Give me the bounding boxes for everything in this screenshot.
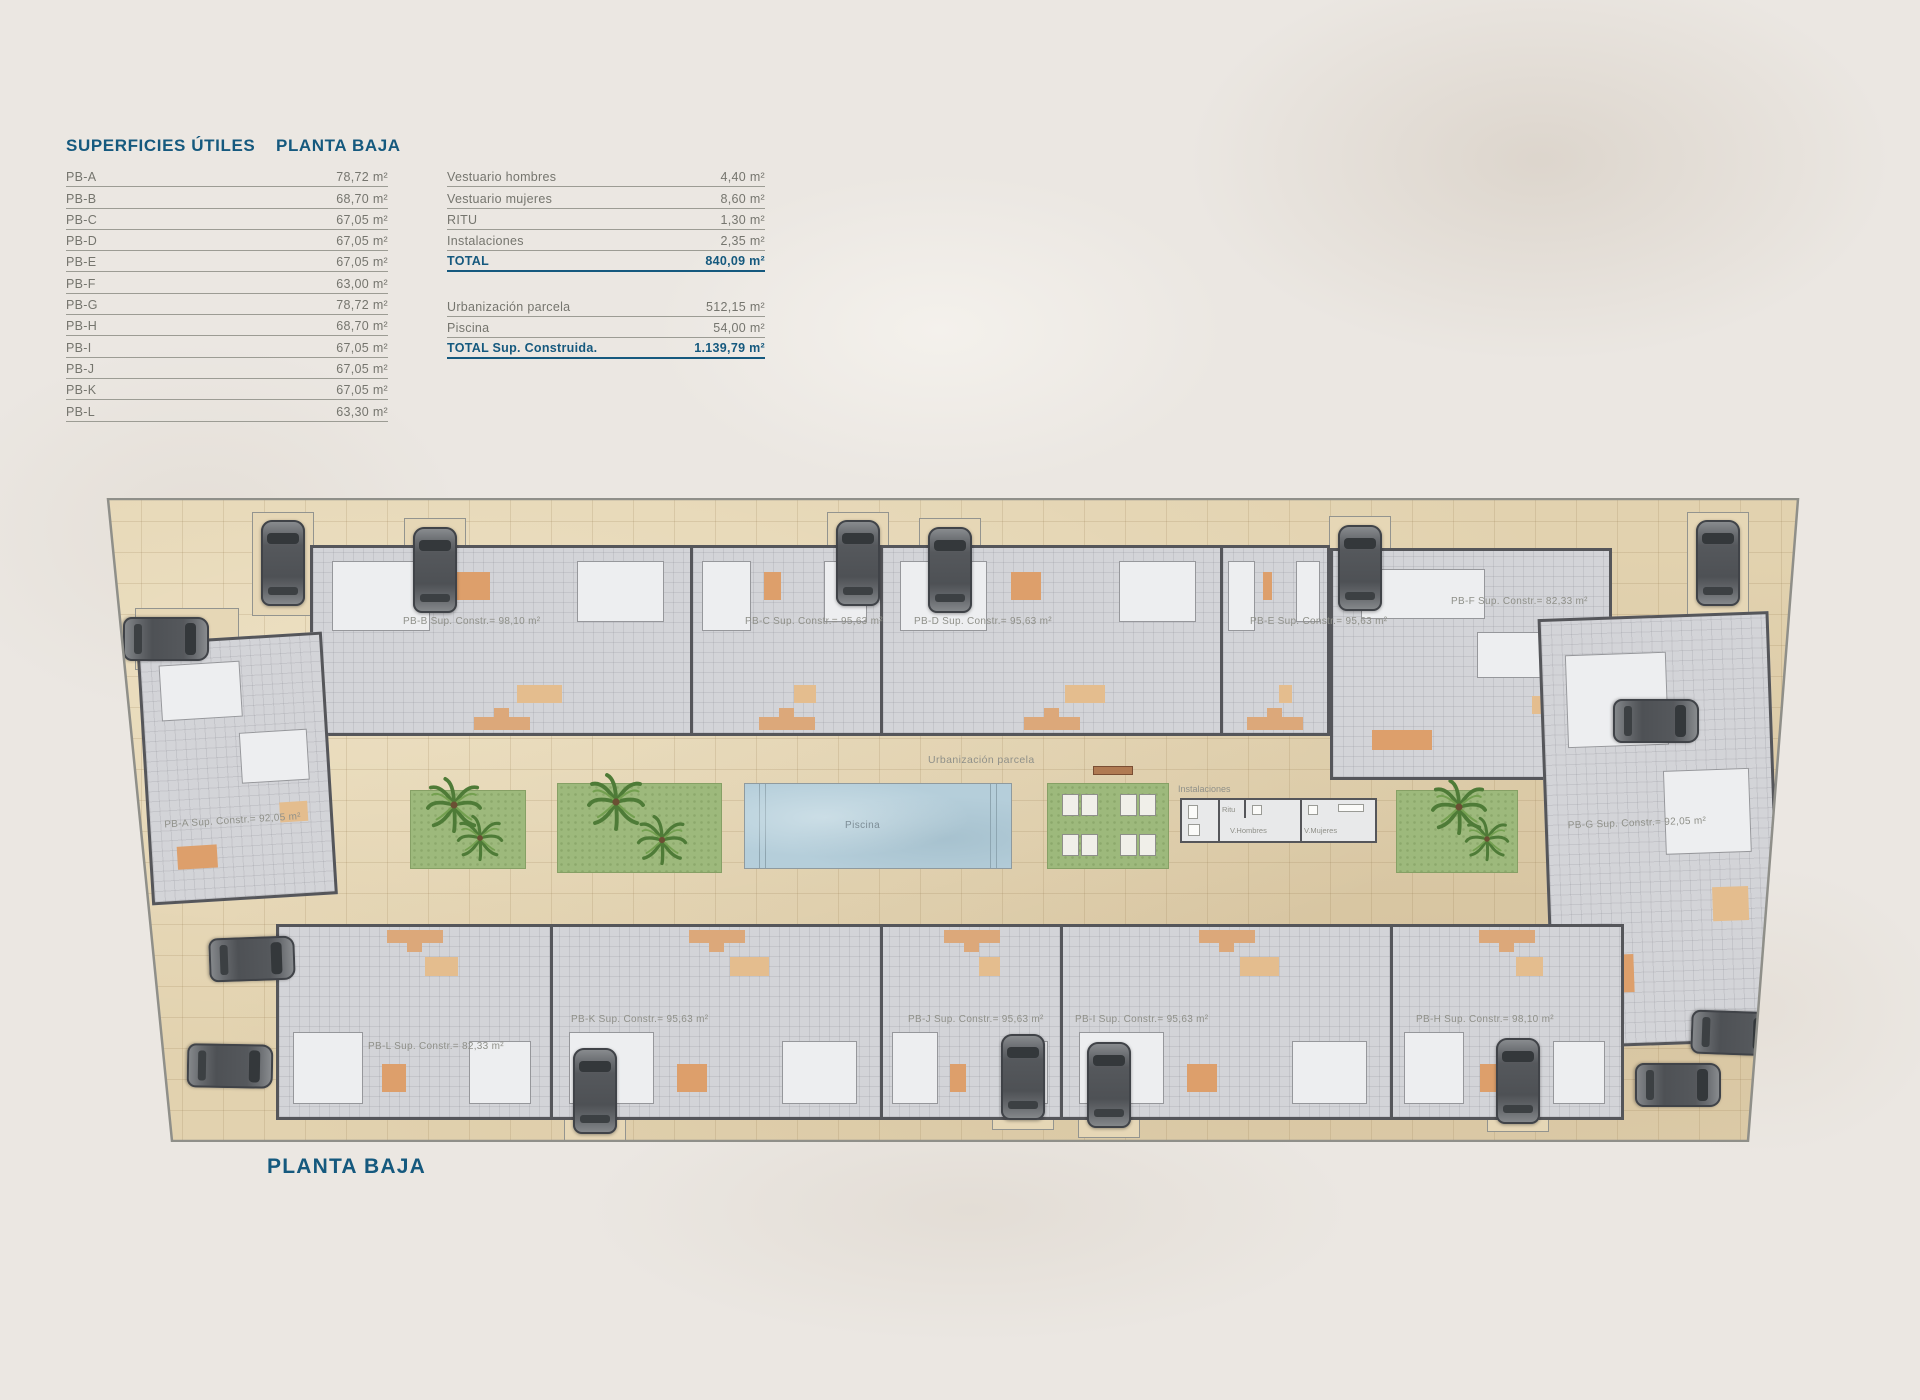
swimming-pool: Piscina (744, 783, 1012, 869)
room (782, 1041, 857, 1104)
table-row: PB-G 78,72 m² (66, 294, 388, 315)
unit-label: PB-E Sup. Constr.= 95,63 m² (1250, 616, 1387, 627)
table-row: PB-A 78,72 m² (66, 166, 388, 187)
car-icon (187, 1043, 274, 1088)
row-value: 67,05 m² (336, 341, 388, 355)
room (1292, 1041, 1367, 1104)
car-icon (123, 617, 209, 661)
room (892, 1032, 938, 1104)
building-strip-north: PB-B Sup. Constr.= 98,10 m² PB-C Sup. Co… (310, 545, 1330, 736)
furniture (382, 1064, 406, 1093)
sun-lounger (1081, 834, 1098, 856)
terrace (1479, 930, 1535, 943)
grand-total-row: TOTAL Sup. Construida. 1.139,79 m² (447, 338, 765, 359)
row-value: 67,05 m² (336, 234, 388, 248)
car-icon (836, 520, 880, 606)
wall (1244, 800, 1246, 818)
table-row: Vestuario hombres 4,40 m² (447, 166, 765, 187)
table-row: PB-C 67,05 m² (66, 209, 388, 230)
total-label: TOTAL (447, 254, 489, 268)
summary-rows: Vestuario hombres 4,40 m² Vestuario muje… (447, 166, 765, 251)
terrace (944, 930, 1000, 943)
ritu-label: Ritu (1222, 805, 1235, 814)
sun-lounger (1081, 794, 1098, 816)
row-value: 67,05 m² (336, 383, 388, 397)
furniture (730, 957, 769, 976)
table-row: PB-K 67,05 m² (66, 379, 388, 400)
furniture (177, 844, 218, 869)
table-row: Vestuario mujeres 8,60 m² (447, 187, 765, 208)
row-value: 2,35 m² (721, 234, 765, 248)
row-label: PB-A (66, 170, 96, 184)
terrace (1199, 930, 1255, 943)
car-icon (1087, 1042, 1131, 1128)
car-icon (928, 527, 972, 613)
terrace (387, 930, 443, 943)
furniture (1279, 685, 1291, 704)
furniture (1263, 572, 1272, 600)
page-title: SUPERFICIES ÚTILES (66, 136, 255, 156)
fixture (1188, 824, 1200, 836)
row-label: Vestuario hombres (447, 170, 556, 184)
car-icon (208, 936, 295, 983)
row-value: 67,05 m² (336, 213, 388, 227)
sun-lounger (1062, 834, 1079, 856)
row-value: 67,05 m² (336, 362, 388, 376)
table-row: PB-E 67,05 m² (66, 251, 388, 272)
grand-total-value: 1.139,79 m² (694, 341, 765, 355)
table-row: PB-L 63,30 m² (66, 400, 388, 421)
palm-tree-icon (636, 814, 688, 866)
furniture (794, 685, 816, 704)
table-row: RITU 1,30 m² (447, 209, 765, 230)
grand-total-label: TOTAL Sup. Construida. (447, 341, 597, 355)
row-value: 8,60 m² (721, 192, 765, 206)
unit-label: PB-J Sup. Constr.= 95,63 m² (908, 1014, 1044, 1025)
car-icon (573, 1048, 617, 1134)
vestuario-mujeres-label: V.Mujeres (1304, 826, 1337, 835)
car-icon (1690, 1010, 1777, 1057)
urbanizacion-label: Urbanización parcela (928, 754, 1035, 766)
terrace (474, 717, 530, 730)
furniture (950, 1064, 966, 1093)
room (159, 660, 243, 721)
total-row: TOTAL 840,09 m² (447, 251, 765, 272)
car-icon (1696, 520, 1740, 606)
table-row: Instalaciones 2,35 m² (447, 230, 765, 251)
furniture (979, 957, 1000, 976)
row-label: PB-G (66, 298, 98, 312)
building-strip-south: PB-L Sup. Constr.= 82,33 m² PB-K Sup. Co… (276, 924, 1624, 1120)
car-icon (1613, 699, 1699, 743)
row-label: RITU (447, 213, 477, 227)
terrace (1247, 717, 1303, 730)
watercolor-blob (1050, 0, 1920, 440)
room (577, 561, 664, 622)
furniture (764, 572, 781, 600)
table-row: PB-J 67,05 m² (66, 358, 388, 379)
apartment-unit: PB-E Sup. Constr.= 95,63 m² (1223, 548, 1327, 733)
sun-lounger (1139, 834, 1156, 856)
row-label: Urbanización parcela (447, 300, 570, 314)
fixture (1252, 805, 1262, 815)
room (1119, 561, 1197, 622)
car-icon (1338, 525, 1382, 611)
row-label: PB-L (66, 405, 95, 419)
pool-label: Piscina (845, 820, 880, 831)
row-value: 1,30 m² (721, 213, 765, 227)
furniture (425, 957, 458, 976)
room (1663, 768, 1751, 856)
areas-table: PB-A 78,72 m² PB-B 68,70 m² PB-C 67,05 m… (66, 166, 388, 422)
terrace (1024, 717, 1080, 730)
row-label: PB-J (66, 362, 94, 376)
page-subtitle: PLANTA BAJA (276, 136, 401, 156)
room (293, 1032, 363, 1104)
row-label: PB-C (66, 213, 97, 227)
unit-label: PB-I Sup. Constr.= 95,63 m² (1075, 1014, 1208, 1025)
row-value: 78,72 m² (336, 298, 388, 312)
unit-label: PB-L Sup. Constr.= 82,33 m² (368, 1041, 504, 1052)
table-row: PB-D 67,05 m² (66, 230, 388, 251)
apartment-unit: PB-B Sup. Constr.= 98,10 m² (313, 548, 693, 733)
furniture (677, 1064, 706, 1093)
summary-table: Vestuario hombres 4,40 m² Vestuario muje… (447, 166, 765, 359)
fixture (1338, 804, 1364, 812)
table-row: Urbanización parcela 512,15 m² (447, 295, 765, 316)
table-spacer (447, 272, 765, 295)
car-icon (1635, 1063, 1721, 1107)
row-value: 68,70 m² (336, 319, 388, 333)
car-icon (1496, 1038, 1540, 1124)
car-icon (261, 520, 305, 606)
furniture (1011, 572, 1041, 600)
row-label: Piscina (447, 321, 489, 335)
wall (1300, 800, 1302, 841)
vestuario-hombres-label: V.Hombres (1230, 826, 1267, 835)
total-value: 840,09 m² (705, 254, 765, 268)
table-row: PB-B 68,70 m² (66, 187, 388, 208)
unit-label: PB-B Sup. Constr.= 98,10 m² (403, 616, 540, 627)
row-value: 512,15 m² (706, 300, 765, 314)
row-label: PB-H (66, 319, 97, 333)
table-row: PB-I 67,05 m² (66, 336, 388, 357)
furniture (456, 572, 490, 600)
wall (1218, 800, 1220, 841)
floorplan-page: { "header": { "title": "SUPERFICIES ÚTIL… (0, 0, 1920, 1357)
row-label: PB-I (66, 341, 92, 355)
row-value: 4,40 m² (721, 170, 765, 184)
room (1296, 561, 1320, 622)
fixture (1188, 805, 1198, 819)
unit-label: PB-F Sup. Constr.= 82,33 m² (1451, 596, 1588, 607)
unit-label: PB-H Sup. Constr.= 98,10 m² (1416, 1014, 1554, 1025)
furniture (1187, 1064, 1216, 1093)
car-icon (1001, 1034, 1045, 1120)
palm-tree-icon (1464, 816, 1510, 862)
apartment-unit: PB-L Sup. Constr.= 82,33 m² (279, 927, 553, 1117)
unit-label: PB-K Sup. Constr.= 95,63 m² (571, 1014, 708, 1025)
row-value: 68,70 m² (336, 192, 388, 206)
room (1553, 1041, 1605, 1104)
table-row: Piscina 54,00 m² (447, 317, 765, 338)
terrace (759, 717, 815, 730)
row-value: 63,00 m² (336, 277, 388, 291)
row-value: 67,05 m² (336, 255, 388, 269)
sun-lounger (1139, 794, 1156, 816)
site-plan: Urbanización parcela Piscina Instalacion… (100, 498, 1806, 1142)
terrace (689, 930, 745, 943)
unit-label: PB-C Sup. Constr.= 95,63 m² (745, 616, 883, 627)
sunbed-garden (1047, 783, 1169, 869)
room (702, 561, 751, 631)
sun-lounger (1120, 794, 1137, 816)
row-value: 78,72 m² (336, 170, 388, 184)
plan-title: PLANTA BAJA (267, 1155, 426, 1179)
unit-label: PB-D Sup. Constr.= 95,63 m² (914, 616, 1052, 627)
row-label: PB-D (66, 234, 97, 248)
table-row: PB-H 68,70 m² (66, 315, 388, 336)
row-label: PB-K (66, 383, 96, 397)
furniture (1516, 957, 1543, 976)
fixture (1308, 805, 1318, 815)
furniture (1240, 957, 1279, 976)
row-label: PB-B (66, 192, 96, 206)
row-label: Vestuario mujeres (447, 192, 552, 206)
furniture (1065, 685, 1105, 704)
table-row: PB-F 63,00 m² (66, 272, 388, 293)
furniture (1712, 886, 1749, 921)
furniture (1372, 730, 1433, 750)
room (238, 728, 309, 783)
row-label: Instalaciones (447, 234, 524, 248)
sun-lounger (1062, 794, 1079, 816)
instalaciones-label: Instalaciones (1178, 784, 1231, 794)
summary-rows-2: Urbanización parcela 512,15 m² Piscina 5… (447, 295, 765, 338)
facilities-block: Ritu V.Hombres V.Mujeres (1180, 798, 1377, 843)
row-value: 54,00 m² (713, 321, 765, 335)
car-icon (413, 527, 457, 613)
row-label: PB-F (66, 277, 96, 291)
unit-label: PB-A Sup. Constr.= 92,05 m² (164, 811, 301, 830)
palm-tree-icon (456, 814, 504, 862)
furniture (517, 685, 562, 704)
row-label: PB-E (66, 255, 96, 269)
sun-lounger (1120, 834, 1137, 856)
row-value: 63,30 m² (336, 405, 388, 419)
bench (1093, 766, 1133, 775)
room (1404, 1032, 1463, 1104)
apartment-unit-a: PB-A Sup. Constr.= 92,05 m² (136, 632, 338, 906)
